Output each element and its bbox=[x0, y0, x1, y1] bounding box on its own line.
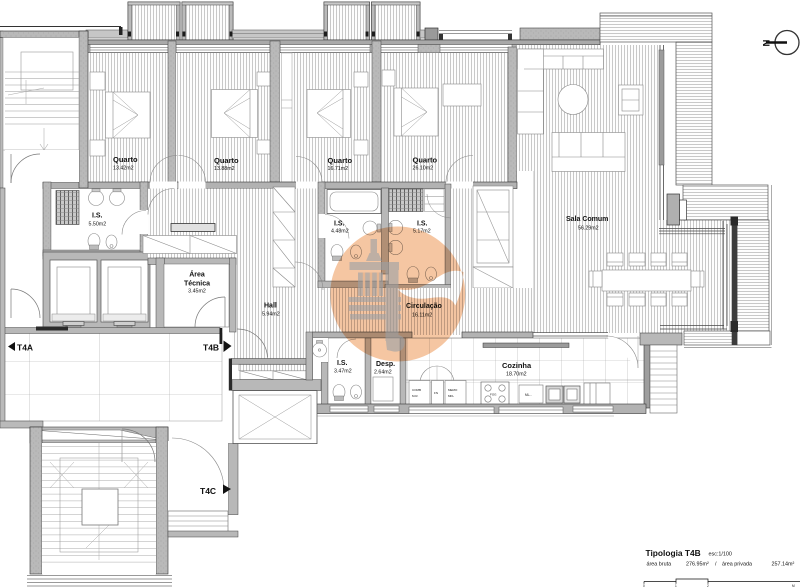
svg-text:Desp.: Desp. bbox=[376, 361, 395, 368]
svg-text:13.88m2: 13.88m2 bbox=[214, 166, 235, 172]
svg-text:0: 0 bbox=[643, 584, 645, 588]
svg-text:Hall: Hall bbox=[264, 303, 277, 310]
svg-text:276.95m²: 276.95m² bbox=[686, 562, 709, 568]
svg-text:Sala Comum: Sala Comum bbox=[566, 216, 608, 223]
svg-text:I.S.: I.S. bbox=[334, 221, 345, 228]
svg-text:M.R.: M.R. bbox=[412, 394, 418, 398]
svg-text:Técnica: Técnica bbox=[184, 281, 210, 288]
svg-text:N: N bbox=[762, 39, 773, 46]
svg-text:FOG: FOG bbox=[490, 393, 497, 397]
svg-text:/: / bbox=[715, 562, 717, 568]
svg-text:MEMO: MEMO bbox=[448, 388, 458, 392]
svg-text:257.14m²: 257.14m² bbox=[772, 562, 795, 568]
svg-text:M: M bbox=[792, 584, 795, 588]
svg-text:T4C: T4C bbox=[200, 486, 216, 496]
svg-text:2: 2 bbox=[707, 584, 709, 588]
svg-text:18.70m2: 18.70m2 bbox=[506, 372, 527, 378]
svg-text:2.64m2: 2.64m2 bbox=[374, 370, 392, 376]
svg-text:Quarto: Quarto bbox=[214, 156, 239, 165]
svg-text:Quarto: Quarto bbox=[113, 155, 138, 164]
svg-text:16.71m2: 16.71m2 bbox=[328, 166, 349, 172]
svg-text:Área: Área bbox=[189, 270, 205, 279]
svg-text:4.48m2: 4.48m2 bbox=[331, 229, 349, 235]
svg-text:13.42m2: 13.42m2 bbox=[113, 166, 134, 172]
svg-text:área bruta: área bruta bbox=[647, 562, 672, 568]
svg-text:T4B: T4B bbox=[203, 343, 219, 353]
svg-text:I.S.: I.S. bbox=[417, 221, 428, 228]
svg-text:3.47m2: 3.47m2 bbox=[334, 369, 352, 375]
svg-text:COMB: COMB bbox=[412, 388, 421, 392]
svg-text:5.94m2: 5.94m2 bbox=[262, 312, 280, 318]
svg-text:Tipologia T4B: Tipologia T4B bbox=[646, 548, 701, 558]
svg-text:Quarto: Quarto bbox=[413, 156, 438, 165]
svg-text:Quarto: Quarto bbox=[328, 156, 353, 165]
svg-text:I.S.: I.S. bbox=[337, 360, 348, 367]
svg-text:26.10m2: 26.10m2 bbox=[413, 166, 434, 172]
svg-text:3.45m2: 3.45m2 bbox=[188, 289, 206, 295]
svg-text:1: 1 bbox=[675, 584, 677, 588]
svg-text:MFL: MFL bbox=[448, 394, 454, 398]
svg-text:T4A: T4A bbox=[17, 343, 33, 353]
svg-text:Cozinha: Cozinha bbox=[502, 361, 532, 370]
svg-text:FN: FN bbox=[434, 391, 438, 395]
svg-text:5.50m2: 5.50m2 bbox=[89, 222, 107, 228]
svg-text:56.29m2: 56.29m2 bbox=[578, 226, 599, 232]
svg-text:esc:1/100: esc:1/100 bbox=[709, 552, 732, 558]
svg-text:ML...: ML... bbox=[525, 393, 532, 397]
svg-text:I.S.: I.S. bbox=[92, 213, 103, 220]
svg-text:área privada: área privada bbox=[722, 562, 752, 568]
